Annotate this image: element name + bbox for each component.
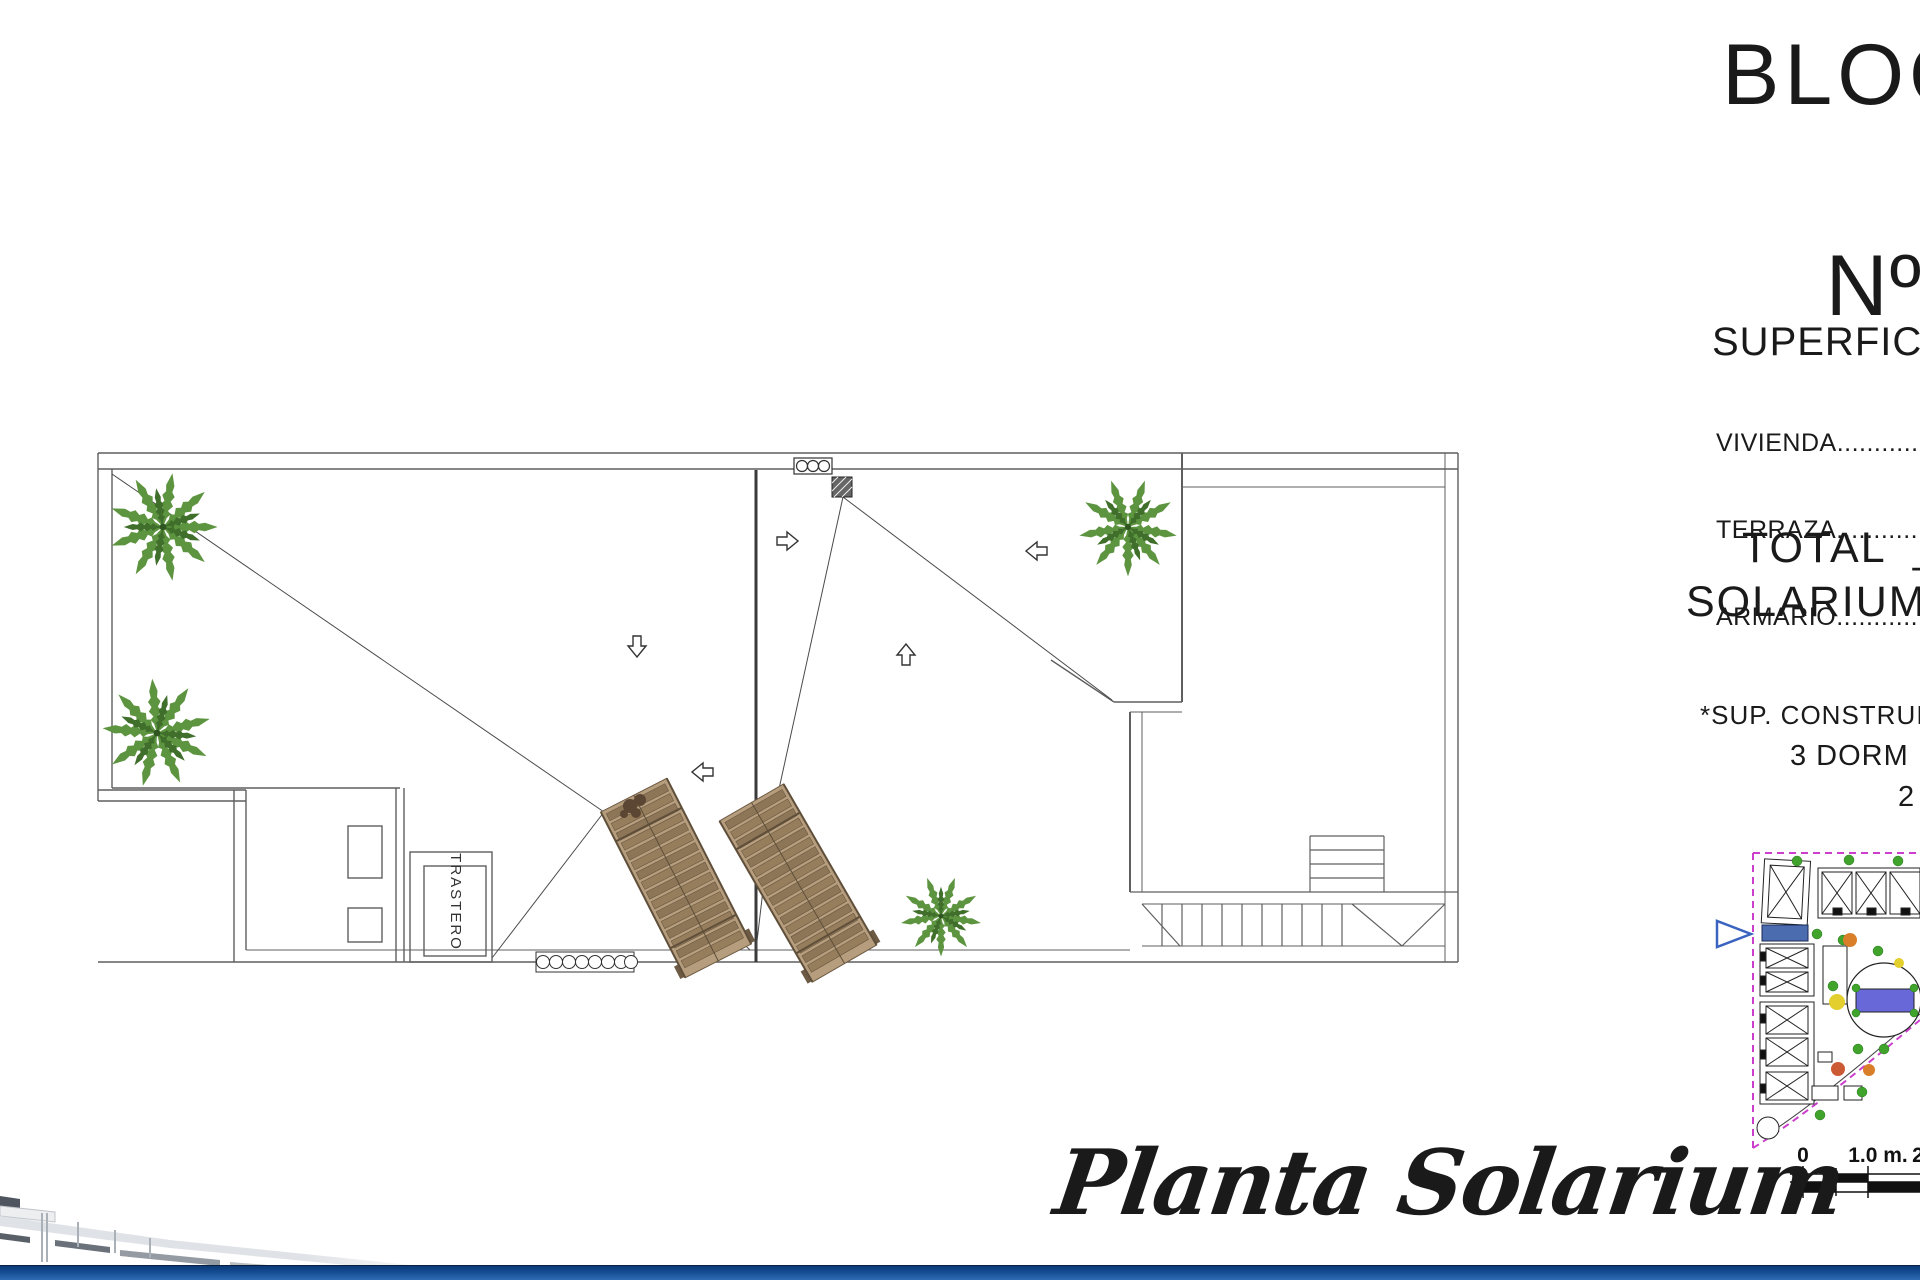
note-partial: 2 — [1898, 781, 1914, 814]
direction-arrow — [897, 644, 915, 665]
plan-graphics: TRASTERO — [0, 0, 1920, 1280]
palm-tree — [895, 869, 988, 963]
note-constructed-surfaces: *SUP. CONSTRUIDAS — [1700, 700, 1920, 731]
storage-room-label: TRASTERO — [447, 853, 464, 951]
direction-arrow — [777, 532, 798, 550]
direction-arrow — [628, 636, 646, 657]
sun-lounger — [596, 776, 755, 980]
surfaces-heading: SUPERFICIE — [1712, 320, 1920, 365]
total-line: TOTAL _ 9 — [1742, 524, 1920, 573]
surface-row-vivienda: VIVIENDA..................... — [1716, 429, 1920, 458]
note-bedrooms: 3 DORM — [1790, 740, 1909, 773]
drawing-sheet: TRASTERO — [0, 0, 1920, 1280]
palm-tree — [110, 472, 218, 582]
sun-lounger — [715, 781, 881, 984]
block-title: BLOQ — [1722, 26, 1920, 125]
scale-tick-2m: 2 — [1912, 1144, 1920, 1167]
direction-arrow — [1026, 542, 1047, 560]
bottom-planter — [536, 952, 638, 972]
highlighted-unit — [1762, 925, 1808, 941]
drain-icon — [832, 477, 852, 497]
palm-tree — [85, 661, 229, 806]
palm-tree — [1059, 458, 1198, 597]
storage-room — [348, 826, 492, 962]
dotted-leader: ..................... — [1837, 429, 1920, 457]
sight-lines — [112, 474, 1112, 958]
staircase — [1130, 836, 1458, 946]
direction-arrow — [692, 763, 713, 781]
scale-tick-1m: 1.0 m. — [1848, 1144, 1908, 1167]
pool — [1856, 989, 1914, 1012]
footer-bar — [0, 1265, 1920, 1280]
sheet-caption: Planta Solarium — [1049, 1130, 1851, 1236]
unit-pointer-icon — [1717, 921, 1751, 947]
solarium-line: SOLARIUM_ — [1686, 578, 1920, 627]
site-map — [1717, 853, 1920, 1148]
top-planter — [794, 458, 832, 474]
